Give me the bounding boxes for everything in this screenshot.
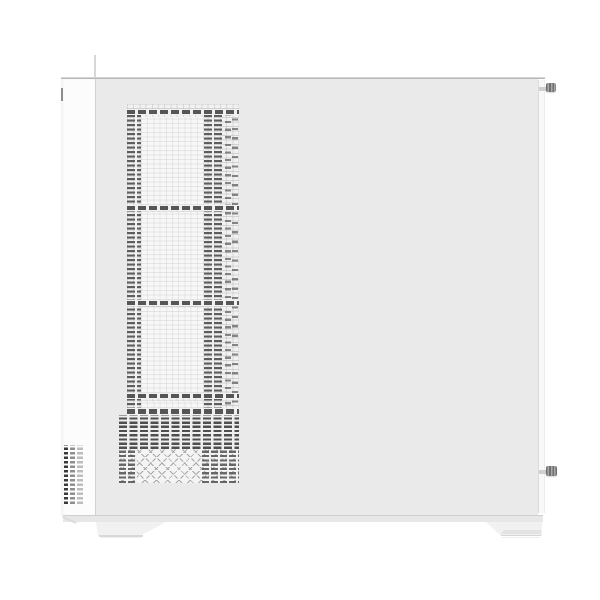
front-vent-slots xyxy=(64,445,89,504)
fan-cutout-partial xyxy=(141,401,204,408)
mesh-dark-column-right xyxy=(204,110,222,415)
zigzag-edge-right xyxy=(202,449,239,483)
mesh-separator-row-4 xyxy=(127,393,239,399)
zigzag-edge-left xyxy=(119,449,137,483)
mesh-dense-band xyxy=(119,415,239,449)
front-top-seam-line xyxy=(94,55,96,78)
mesh-scatter-column-2 xyxy=(232,114,238,412)
fan-cutout-2 xyxy=(141,212,204,300)
mesh-separator-row-3 xyxy=(127,300,239,306)
mesh-separator-row-1 xyxy=(127,109,239,115)
rear-panel-edge xyxy=(538,80,545,513)
case-foot-right-pad xyxy=(501,530,541,534)
front-edge-notch xyxy=(61,88,63,101)
product-photo xyxy=(0,0,600,600)
thumbscrew-top-icon xyxy=(546,83,556,92)
mesh-separator-row-2 xyxy=(127,205,239,211)
foot-shadow-right xyxy=(502,537,540,538)
bottom-chassis-trim xyxy=(63,515,543,522)
top-panel-seam xyxy=(61,77,545,79)
case-foot-right-edge-line xyxy=(501,535,541,536)
foot-shadow-left xyxy=(101,537,141,538)
fan-cutout-1 xyxy=(141,117,204,205)
mesh-scatter-column-1 xyxy=(225,112,231,412)
thumbscrew-bottom-icon xyxy=(546,466,557,476)
fan-cutout-3 xyxy=(141,307,204,393)
case-foot-left xyxy=(94,522,166,536)
mesh-dark-column-left xyxy=(127,110,141,415)
mesh-separator-row-5 xyxy=(127,408,239,415)
